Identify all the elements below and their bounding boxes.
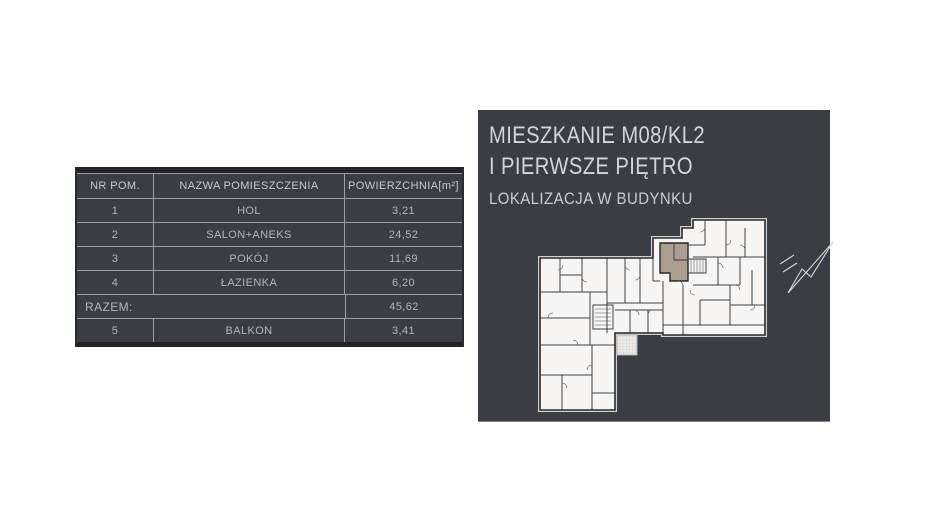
col-header-room-number: NR POM. [77,174,154,198]
terrace-hatch [617,335,637,355]
table-row: 5 BALKON 3,41 [77,318,462,342]
table-row: 2 SALON+ANEKS 24,52 [77,222,462,246]
table-row: 1 HOL 3,21 [77,198,462,222]
table-row: 4 ŁAZIENKA 6,20 [77,270,462,294]
north-arrow-icon [780,242,833,293]
room-name: POKÓJ [154,247,345,270]
building-footprint [540,220,765,410]
page-title-line1: MIESZKANIE M08/KL2 [489,120,705,151]
room-name: HOL [154,199,345,222]
room-number: 1 [77,199,154,222]
floor-plan [530,215,840,420]
col-header-room-name: NAZWA POMIESZCZENIA [154,174,345,198]
table-header-row: NR POM. NAZWA POMIESZCZENIA POWIERZCHNIA… [77,173,462,198]
page-title-line2: I PIERWSZE PIĘTRO [489,151,705,182]
total-row: RAZEM: 45,62 [77,294,462,318]
room-area: 6,20 [345,271,462,294]
col-header-area: POWIERZCHNIA[m²] [345,174,462,198]
room-number: 5 [77,319,154,342]
room-number: 3 [77,247,154,270]
room-number: 4 [77,271,154,294]
room-name: BALKON [154,319,345,342]
room-area: 24,52 [345,223,462,246]
panel-titles: MIESZKANIE M08/KL2 I PIERWSZE PIĘTRO LOK… [489,120,746,210]
room-name: ŁAZIENKA [154,271,345,294]
total-label: RAZEM: [77,295,346,318]
unit-location-panel: MIESZKANIE M08/KL2 I PIERWSZE PIĘTRO LOK… [478,110,830,422]
room-area: 11,69 [345,247,462,270]
room-area: 3,21 [345,199,462,222]
room-number: 2 [77,223,154,246]
total-area: 45,62 [346,295,462,318]
panel-subtitle: LOKALIZACJA W BUDYNKU [489,188,715,210]
table-row: 3 POKÓJ 11,69 [77,246,462,270]
room-area: 3,41 [345,319,462,342]
table-bottom-strip [77,342,462,347]
area-table: NR POM. NAZWA POMIESZCZENIA POWIERZCHNIA… [75,167,464,347]
room-name: SALON+ANEKS [154,223,345,246]
